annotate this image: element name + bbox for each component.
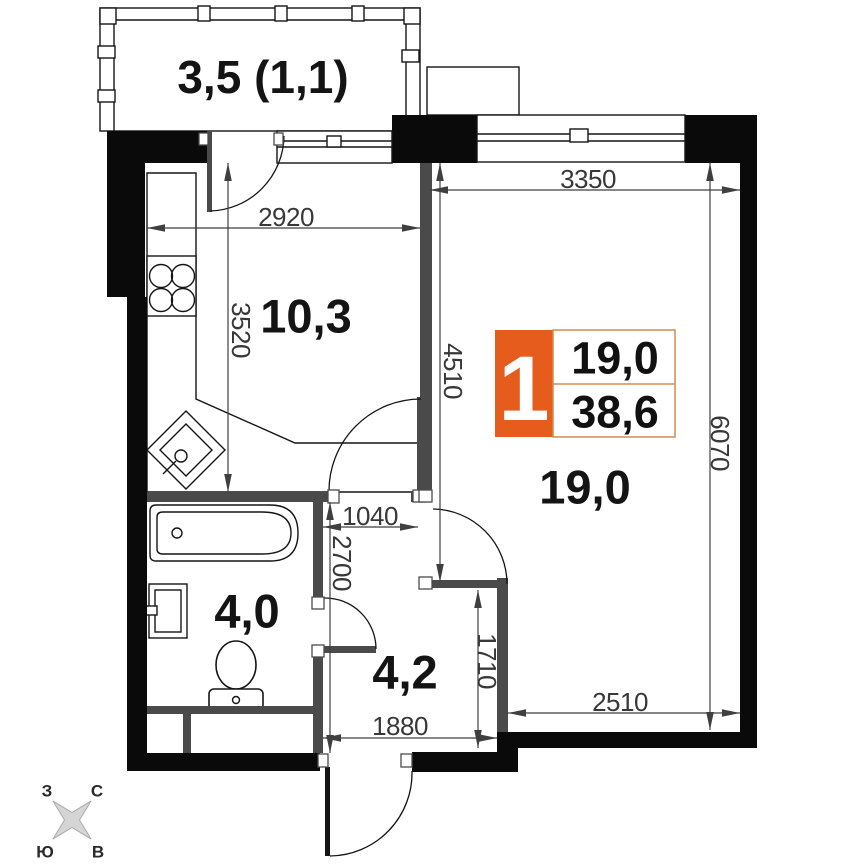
stove [147,256,196,316]
kitchen-window [277,131,392,163]
wall-bottom-left [127,753,320,771]
wall-left-upper [107,163,145,297]
wall-bottom-right [497,732,740,748]
badge-rooms-count: 1 [498,338,549,440]
dim-label: 3520 [226,302,256,358]
partition-bath-lower [313,657,323,753]
wall-left-lower [127,297,147,771]
dim-label: 2700 [327,535,357,591]
info-badge: 1 19,0 38,6 [495,330,675,440]
wall-top-left [107,131,207,163]
compass-west: З [42,782,53,801]
dim-label: 6070 [705,415,735,471]
living-room-window [477,115,685,162]
dim-label: 2510 [592,687,648,717]
dim-label: 2920 [258,202,314,232]
washbasin [142,584,187,638]
bathtub [150,505,298,561]
compass-north: С [91,782,103,801]
compass-east: В [92,843,104,862]
dim-label: 4510 [438,343,468,399]
wall-bottom-entrance [412,752,497,772]
wall-top-right-corner [685,115,740,163]
dim-label: 1880 [372,711,428,741]
dim-label: 1040 [342,501,398,531]
wall-right [740,115,757,748]
label-living: 19,0 [539,461,630,514]
partition-kitchen-bath [147,492,328,502]
wall-top-pier [392,115,477,163]
label-kitchen: 10,3 [260,290,351,343]
dim-label: 3350 [560,164,616,194]
glazing-post [100,8,116,24]
label-bathroom: 4,0 [214,585,279,638]
label-balcony: 3,5 (1,1) [177,51,348,103]
floor-plan: 2920 3520 3350 4510 6070 1040 2700 1710 [0,0,864,864]
glazing-post [404,8,420,24]
label-hallway: 4,2 [372,646,437,699]
badge-living-area: 19,0 [571,333,659,384]
compass-south: Ю [36,843,54,862]
dim-label: 1710 [472,633,502,689]
exterior-unit-box [427,67,519,115]
badge-total-area: 38,6 [571,387,659,438]
partition-bath-upper [313,502,323,597]
